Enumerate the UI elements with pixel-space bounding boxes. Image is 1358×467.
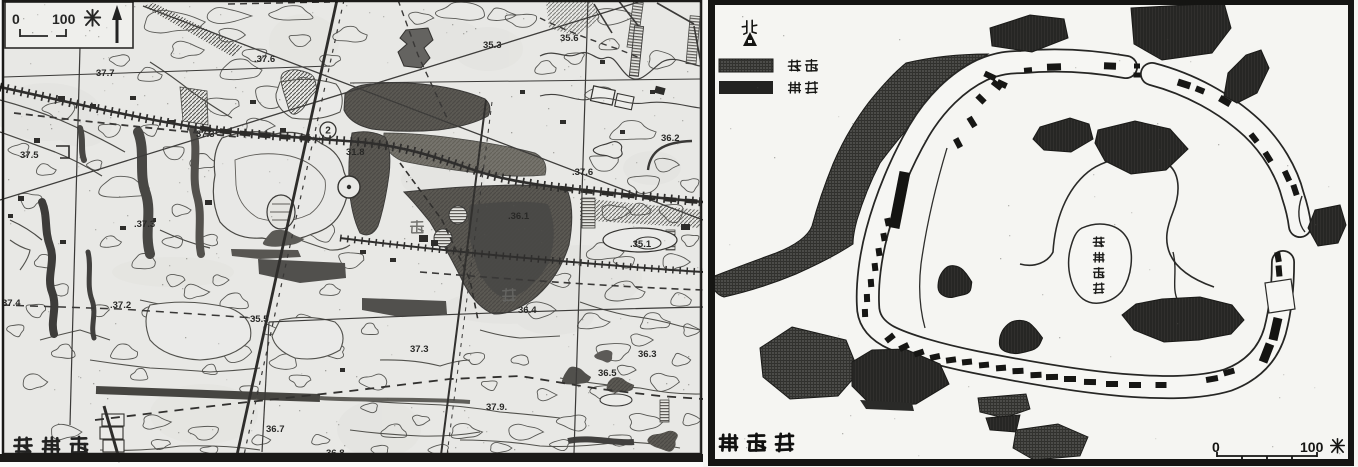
svg-text:0: 0: [1212, 439, 1220, 455]
svg-text:100: 100: [1300, 439, 1324, 455]
